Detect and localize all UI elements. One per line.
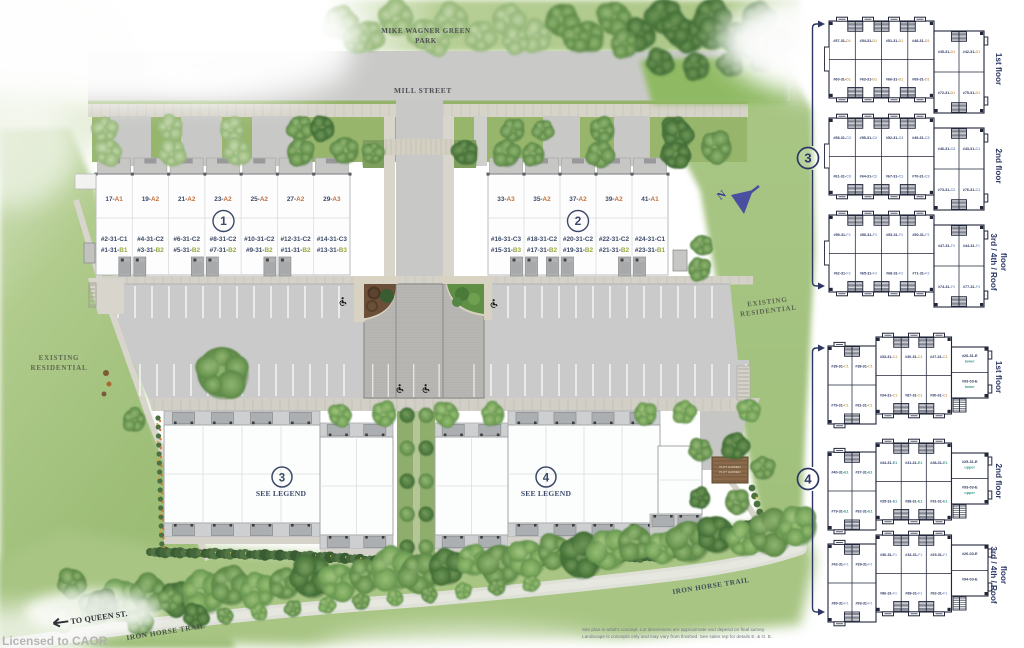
svg-text:#21-31-B2: #21-31-B2 [599,247,630,254]
svg-text:#17-31-B2: #17-31-B2 [527,247,558,254]
svg-text:#93-03-E: #93-03-E [962,486,978,490]
svg-text:#61-31-C3: #61-31-C3 [833,175,850,179]
svg-text:#23-31-B1: #23-31-B1 [635,247,666,254]
svg-text:#53-31-F3: #53-31-F3 [886,233,903,237]
svg-text:#22-31-C2: #22-31-C2 [599,236,630,243]
svg-text:#93-31-F1: #93-31-F1 [855,602,872,606]
svg-text:#7-31-B2: #7-31-B2 [210,247,237,254]
svg-text:#94-03-E: #94-03-E [962,578,978,582]
svg-text:#66-31-D1: #66-31-D1 [886,78,903,82]
svg-text:#46-31-C3: #46-31-C3 [938,147,955,151]
svg-text:#50-31-F3: #50-31-F3 [912,233,929,237]
svg-text:#32-31-F1: #32-31-F1 [905,553,922,557]
svg-text:29-A3: 29-A3 [323,196,341,203]
svg-text:#24-31-C1: #24-31-C1 [635,236,666,243]
svg-text:#26-31-E: #26-31-E [962,354,978,358]
svg-text:#48-31-D1: #48-31-D1 [912,39,929,43]
svg-text:#39-31-C1: #39-31-C1 [831,365,848,369]
svg-text:#25-31-E: #25-31-E [962,460,978,464]
svg-text:21-A2: 21-A2 [178,196,196,203]
svg-text:#12-31-C2: #12-31-C2 [280,236,311,243]
svg-text:#29-31-F1: #29-31-F1 [930,553,947,557]
svg-text:#79-31-C1: #79-31-C1 [831,404,848,408]
svg-text:#36-31-F1: #36-31-F1 [880,553,897,557]
svg-text:#74-31-F3: #74-31-F3 [938,285,955,289]
svg-text:#2-31-C1: #2-31-C1 [101,236,128,243]
svg-text:PLOT GARDEN: PLOT GARDEN [719,470,740,474]
svg-text:#34-31-E1: #34-31-E1 [880,461,897,465]
svg-text:#60-31-D1: #60-31-D1 [833,78,850,82]
svg-text:#42-31-F1: #42-31-F1 [831,563,848,567]
svg-text:#69-31-D1: #69-31-D1 [912,78,929,82]
svg-text:#16-31-C3: #16-31-C3 [491,236,522,243]
svg-text:#10-31-C2: #10-31-C2 [244,236,275,243]
svg-text:SEE LEGEND: SEE LEGEND [256,489,307,498]
svg-text:#88-31-E1: #88-31-E1 [905,500,922,504]
svg-text:#5-31-B2: #5-31-B2 [173,247,200,254]
svg-text:#51-31-D1: #51-31-D1 [886,39,903,43]
svg-text:upper: upper [964,466,975,470]
svg-text:#92-31-F1: #92-31-F1 [930,592,947,596]
svg-text:floor: floor [999,253,1008,272]
svg-text:MIKE WAGNER GREEN: MIKE WAGNER GREEN [381,27,470,35]
svg-text:#9-31-B2: #9-31-B2 [246,247,273,254]
svg-text:#72-31-D1: #72-31-D1 [938,91,955,95]
svg-text:#27-31-C1: #27-31-C1 [930,355,947,359]
svg-text:3rd / 4th / Roof: 3rd / 4th / Roof [989,546,998,604]
svg-text:#59-31-F3: #59-31-F3 [834,233,851,237]
svg-text:#93-03-E: #93-03-E [962,380,978,384]
svg-text:#80-31-F1: #80-31-F1 [831,602,848,606]
svg-text:3rd / 4th / Roof: 3rd / 4th / Roof [989,233,998,291]
svg-text:EXISTING: EXISTING [39,354,80,362]
svg-text:lower: lower [965,385,975,389]
svg-text:lower: lower [965,360,975,364]
svg-text:#91-31-E1: #91-31-E1 [930,500,947,504]
svg-text:#58-31-C3: #58-31-C3 [833,136,850,140]
svg-text:#92-31-E1: #92-31-E1 [855,510,872,514]
svg-text:#26-03-E: #26-03-E [962,552,978,556]
svg-text:#68-31-F3: #68-31-F3 [886,272,903,276]
svg-text:#73-31-C2: #73-31-C2 [938,188,955,192]
svg-text:#19-31-B2: #19-31-B2 [563,247,594,254]
svg-text:PLOT GARDEN: PLOT GARDEN [719,465,740,469]
svg-text:19-A2: 19-A2 [142,196,160,203]
svg-text:#14-31-C3: #14-31-C3 [317,236,348,243]
svg-text:#86-31-F1: #86-31-F1 [880,592,897,596]
svg-text:2nd floor: 2nd floor [994,463,1003,499]
svg-text:27-A2: 27-A2 [287,196,305,203]
svg-text:1st floor: 1st floor [994,361,1003,394]
svg-text:#77-31-F3: #77-31-F3 [963,285,980,289]
svg-text:#56-31-F3: #56-31-F3 [860,233,877,237]
svg-text:17-A1: 17-A1 [105,196,123,203]
svg-text:#43-31-C1: #43-31-C1 [963,147,980,151]
svg-text:upper: upper [964,491,975,495]
svg-text:#8-31-C2: #8-31-C2 [210,236,237,243]
svg-text:23-A2: 23-A2 [214,196,232,203]
svg-text:3: 3 [279,473,285,485]
svg-text:25-A2: 25-A2 [251,196,269,203]
svg-text:#55-31-C2: #55-31-C2 [860,136,877,140]
svg-text:#89-31-F1: #89-31-F1 [905,592,922,596]
svg-text:4: 4 [804,472,812,487]
svg-text:1st floor: 1st floor [994,53,1003,86]
svg-text:#81-31-C1: #81-31-C1 [855,404,872,408]
svg-text:#4-31-C2: #4-31-C2 [137,236,164,243]
svg-text:#63-31-D1: #63-31-D1 [860,78,877,82]
svg-text:#49-31-C3: #49-31-C3 [912,136,929,140]
svg-text:#15-31-B3: #15-31-B3 [491,247,522,254]
svg-text:PARK: PARK [415,37,437,45]
svg-text:Landscape is concepts only and: Landscape is concepts only and may vary … [582,634,772,639]
svg-text:#52-31-C3: #52-31-C3 [886,136,903,140]
svg-text:#13-31-B3: #13-31-B3 [317,247,348,254]
svg-text:#18-31-C2: #18-31-C2 [527,236,558,243]
svg-text:1: 1 [220,214,227,228]
svg-text:SEE LEGEND: SEE LEGEND [521,489,572,498]
svg-text:#38-31-C1: #38-31-C1 [855,365,872,369]
svg-text:#6-31-C2: #6-31-C2 [173,236,200,243]
svg-text:3: 3 [804,151,811,166]
svg-text:39-A2: 39-A2 [605,196,623,203]
svg-text:33-A3: 33-A3 [497,196,515,203]
svg-text:#34-31-C1: #34-31-C1 [880,394,897,398]
svg-text:#39-31-F1: #39-31-F1 [855,563,872,567]
svg-text:#11-31-B2: #11-31-B2 [281,247,311,254]
svg-text:#45-31-D1: #45-31-D1 [938,50,955,54]
svg-text:#30-31-C1: #30-31-C1 [905,355,922,359]
svg-text:#70-31-C3: #70-31-C3 [912,175,929,179]
svg-text:#67-31-C1: #67-31-C1 [886,175,903,179]
svg-text:#40-31-E1: #40-31-E1 [831,471,848,475]
svg-text:#33-31-C1: #33-31-C1 [880,355,897,359]
svg-text:#1-31-B1: #1-31-B1 [101,247,128,254]
svg-text:RESIDENTIAL: RESIDENTIAL [30,364,87,372]
svg-text:#90-31-C1: #90-31-C1 [930,394,947,398]
svg-text:35-A2: 35-A2 [533,196,551,203]
svg-text:#3-31-B2: #3-31-B2 [137,247,164,254]
svg-text:#44-31-F1: #44-31-F1 [963,244,980,248]
svg-text:37-A2: 37-A2 [569,196,587,203]
svg-text:#64-31-C2: #64-31-C2 [860,175,877,179]
svg-text:#28-31-E1: #28-31-E1 [930,461,947,465]
svg-text:#76-31-C1: #76-31-C1 [963,188,980,192]
svg-text:#31-31-E1: #31-31-E1 [905,461,922,465]
svg-text:41-A1: 41-A1 [641,196,659,203]
svg-text:MILL STREET: MILL STREET [394,86,452,95]
svg-text:2: 2 [575,214,582,228]
svg-text:#47-31-F3: #47-31-F3 [938,244,955,248]
svg-text:#65-31-F3: #65-31-F3 [860,272,877,276]
svg-text:#75-31-D1: #75-31-D1 [963,91,980,95]
svg-text:2nd floor: 2nd floor [994,148,1003,184]
svg-text:#42-31-D1: #42-31-D1 [963,50,980,54]
svg-text:Licensed to CAOR: Licensed to CAOR [2,634,108,648]
svg-text:#35-31-E1: #35-31-E1 [880,500,897,504]
svg-text:#54-31-D1: #54-31-D1 [860,39,877,43]
svg-text:#71-31-F3: #71-31-F3 [912,272,929,276]
svg-text:#57-31-D1: #57-31-D1 [833,39,850,43]
svg-text:#62-31-F3: #62-31-F3 [834,272,851,276]
svg-text:#79-31-E1: #79-31-E1 [831,510,848,514]
svg-text:#87-31-C1: #87-31-C1 [905,394,922,398]
svg-text:4: 4 [543,473,550,485]
svg-text:Site plan is artist's concept.: Site plan is artist's concept. Lot dimen… [582,627,765,632]
svg-text:#37-31-E1: #37-31-E1 [855,471,872,475]
svg-text:#20-31-C2: #20-31-C2 [563,236,594,243]
svg-text:floor: floor [999,566,1008,585]
